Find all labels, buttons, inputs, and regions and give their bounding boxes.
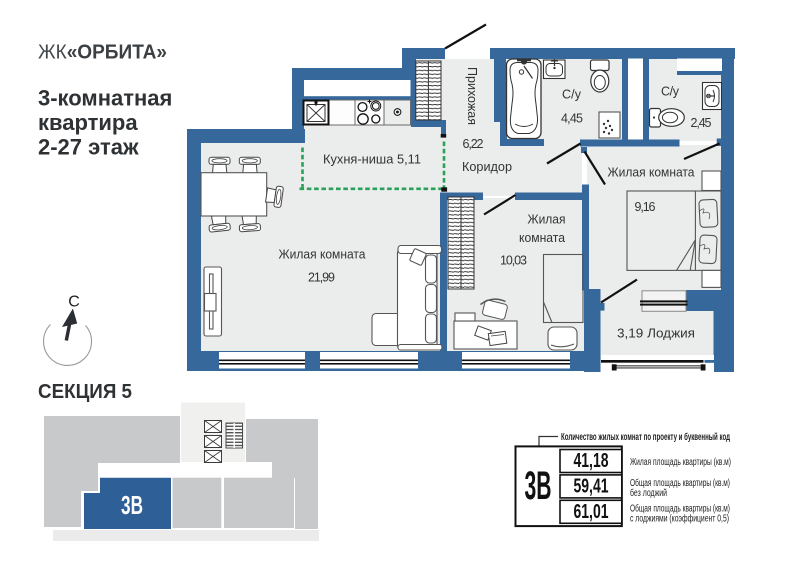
svg-text:Жилая комната: Жилая комната xyxy=(608,166,695,180)
svg-text:9,16: 9,16 xyxy=(635,200,656,214)
svg-text:комната: комната xyxy=(519,231,565,245)
svg-text:61,01: 61,01 xyxy=(574,501,609,523)
svg-text:Жилая площадь квартиры (кв.м): Жилая площадь квартиры (кв.м) xyxy=(630,457,731,468)
svg-text:без лоджий: без лоджий xyxy=(630,487,667,499)
svg-text:10,03: 10,03 xyxy=(500,254,527,268)
svg-text:С/у: С/у xyxy=(562,88,582,102)
svg-text:Жилая комната: Жилая комната xyxy=(279,248,366,262)
svg-text:59,41: 59,41 xyxy=(574,476,609,498)
svg-text:с лоджиями (коэффициент 0,5): с лоджиями (коэффициент 0,5) xyxy=(630,513,729,525)
svg-text:21,99: 21,99 xyxy=(308,271,335,285)
svg-text:С/у: С/у xyxy=(661,85,680,99)
svg-text:6,22: 6,22 xyxy=(463,137,484,151)
svg-text:Коридор: Коридор xyxy=(462,160,512,174)
svg-text:СЕКЦИЯ 5: СЕКЦИЯ 5 xyxy=(38,381,132,403)
svg-text:3-комнатная: 3-комнатная xyxy=(38,86,172,111)
svg-text:квартира: квартира xyxy=(38,110,138,135)
svg-text:2,45: 2,45 xyxy=(691,116,712,130)
svg-text:4,45: 4,45 xyxy=(561,112,583,126)
svg-text:2-27 этаж: 2-27 этаж xyxy=(38,135,139,160)
svg-text:41,18: 41,18 xyxy=(574,450,609,472)
svg-text:С: С xyxy=(68,294,80,311)
svg-text:3,19 Лоджия: 3,19 Лоджия xyxy=(617,327,695,341)
svg-text:Жилая: Жилая xyxy=(528,213,566,227)
svg-text:ЖК«ОРБИТА»: ЖК«ОРБИТА» xyxy=(38,42,167,64)
svg-text:Количество жилых комнат по про: Количество жилых комнат по проекту и бук… xyxy=(561,431,730,443)
svg-text:Кухня-ниша 5,11: Кухня-ниша 5,11 xyxy=(323,153,421,167)
svg-text:3В: 3В xyxy=(525,464,552,508)
svg-text:3В: 3В xyxy=(121,490,143,520)
svg-text:Прихожая: Прихожая xyxy=(465,67,479,125)
